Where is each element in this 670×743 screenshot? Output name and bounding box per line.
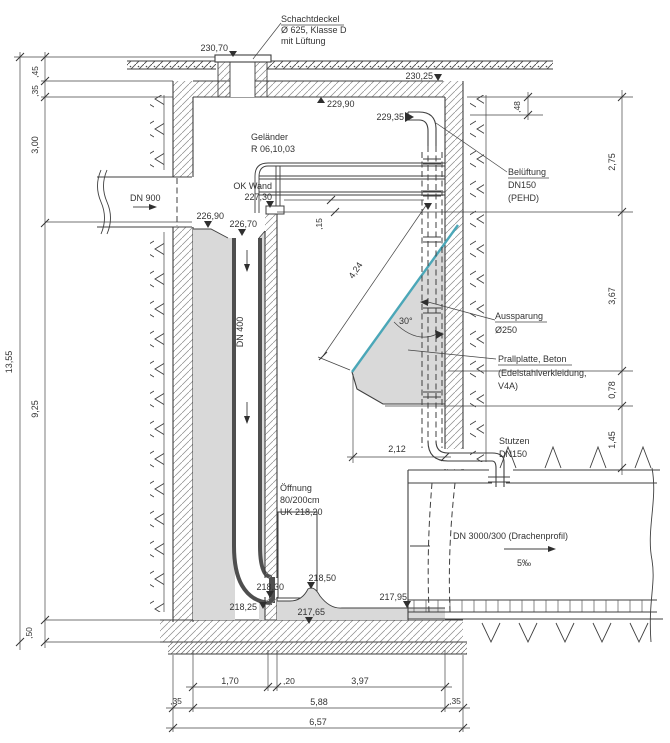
dim-30deg: 30° bbox=[399, 316, 413, 326]
dim-2-75: 2,75 bbox=[607, 153, 617, 171]
bottom-slab bbox=[160, 620, 467, 654]
elevation-226-90: 226,90 bbox=[196, 211, 224, 221]
schachtdeckel-label: Schachtdeckel bbox=[281, 14, 340, 24]
svg-text:227,30: 227,30 bbox=[244, 192, 272, 202]
elevation-218-25: 218,25 bbox=[229, 602, 257, 612]
elevation-229-90: 229,90 bbox=[327, 99, 355, 109]
dim-2-12: 2,12 bbox=[388, 444, 406, 454]
ok-wand-label: OK Wand bbox=[233, 181, 272, 191]
prallplatte-label: Prallplatte, Beton bbox=[498, 354, 567, 364]
elevation-217-95: 217,95 bbox=[379, 592, 407, 602]
svg-text:80/200cm: 80/200cm bbox=[280, 495, 320, 505]
left-wall bbox=[146, 81, 195, 622]
dim-0-78: 0,78 bbox=[607, 381, 617, 399]
dim-0-50: ,50 bbox=[24, 627, 34, 639]
hidden-pipe bbox=[449, 483, 455, 612]
belueftung-label: Belüftung bbox=[508, 167, 546, 177]
manhole-cover bbox=[215, 55, 271, 97]
elevation-218-30: 218,30 bbox=[256, 582, 284, 592]
dim-1-45: 1,45 bbox=[607, 431, 617, 449]
svg-text:V4A): V4A) bbox=[498, 381, 518, 391]
svg-text:Ø250: Ø250 bbox=[495, 325, 517, 335]
level-arrow-icon bbox=[434, 74, 442, 81]
gelaender-label: Geländer bbox=[251, 132, 288, 142]
svg-text:mit Lüftung: mit Lüftung bbox=[281, 36, 326, 46]
svg-text:Ø 625, Klasse D: Ø 625, Klasse D bbox=[281, 25, 347, 35]
dim-0-15: ,15 bbox=[314, 218, 324, 230]
hidden-pipe bbox=[428, 483, 432, 612]
tunnel-dn3000: DN 3000/300 (Drachenprofil) 5‰ bbox=[408, 447, 663, 642]
level-arrow-icon bbox=[403, 601, 411, 608]
elevation-229-35: 229,35 bbox=[376, 112, 404, 122]
soil-under-slab bbox=[168, 642, 467, 654]
svg-text:(Edelstahlverkleidung,: (Edelstahlverkleidung, bbox=[498, 368, 587, 378]
dim-4-24: 4,24 bbox=[346, 260, 364, 280]
dividing-wall bbox=[265, 206, 284, 620]
level-arrow-icon bbox=[238, 229, 246, 236]
drop-chamber: DN 400 bbox=[193, 229, 275, 620]
dim-1-70: 1,70 bbox=[221, 676, 239, 686]
svg-text:DN150: DN150 bbox=[499, 449, 527, 459]
dim-0-35-left: ,35 bbox=[170, 696, 182, 706]
tunnel-bottom-anchors bbox=[482, 623, 648, 642]
right-wall-anchors bbox=[470, 95, 484, 462]
elevation-226-70: 226,70 bbox=[229, 219, 257, 229]
svg-text:(PEHD): (PEHD) bbox=[508, 193, 539, 203]
technical-drawing: DN 400 DN 900 bbox=[0, 0, 670, 743]
elevation-218-50: 218,50 bbox=[308, 573, 336, 583]
dim-5-88: 5,88 bbox=[310, 697, 328, 707]
dim-0-48: ,48 bbox=[512, 101, 522, 113]
svg-text:DN150: DN150 bbox=[508, 180, 536, 190]
oeffnung-label: Öffnung bbox=[280, 483, 312, 493]
stutzen-label: Stutzen bbox=[499, 436, 530, 446]
cover-plate bbox=[215, 55, 271, 62]
dn900-label: DN 900 bbox=[130, 193, 161, 203]
elevation-230-25: 230,25 bbox=[405, 71, 433, 81]
level-arrow-icon bbox=[317, 97, 325, 103]
dim-6-57: 6,57 bbox=[309, 717, 327, 727]
slope-label: 5‰ bbox=[517, 558, 531, 568]
drawing-page: DN 400 DN 900 bbox=[0, 0, 670, 743]
svg-text:R 06,10,03: R 06,10,03 bbox=[251, 144, 295, 154]
right-wall bbox=[443, 81, 486, 470]
wall-cap bbox=[266, 206, 284, 214]
dn3000-label: DN 3000/300 (Drachenprofil) bbox=[453, 531, 568, 541]
elevation-230-70: 230,70 bbox=[200, 43, 228, 53]
break-line-icon bbox=[650, 468, 653, 642]
level-arrow-icon bbox=[307, 582, 315, 589]
aussparung-label: Aussparung bbox=[495, 311, 543, 321]
dn400-label: DN 400 bbox=[235, 317, 245, 348]
dim-0-35-right: ,35 bbox=[449, 696, 461, 706]
dim-0-45: ,45 bbox=[30, 66, 40, 78]
elevation-217-65: 217,65 bbox=[297, 607, 325, 617]
dim-0-35: ,35 bbox=[30, 85, 40, 97]
dim-0-20: ,20 bbox=[283, 676, 295, 686]
flow-arrow-right-icon bbox=[548, 546, 556, 552]
dim-3-00: 3,00 bbox=[30, 136, 40, 154]
dim-9-25: 9,25 bbox=[30, 400, 40, 418]
level-arrow-icon bbox=[204, 221, 212, 228]
dim-13-55: 13,55 bbox=[4, 351, 14, 374]
ground-surface bbox=[127, 61, 553, 69]
dim-3-67: 3,67 bbox=[607, 287, 617, 305]
svg-text:UK 218,20: UK 218,20 bbox=[280, 507, 323, 517]
dim-3-97: 3,97 bbox=[351, 676, 369, 686]
